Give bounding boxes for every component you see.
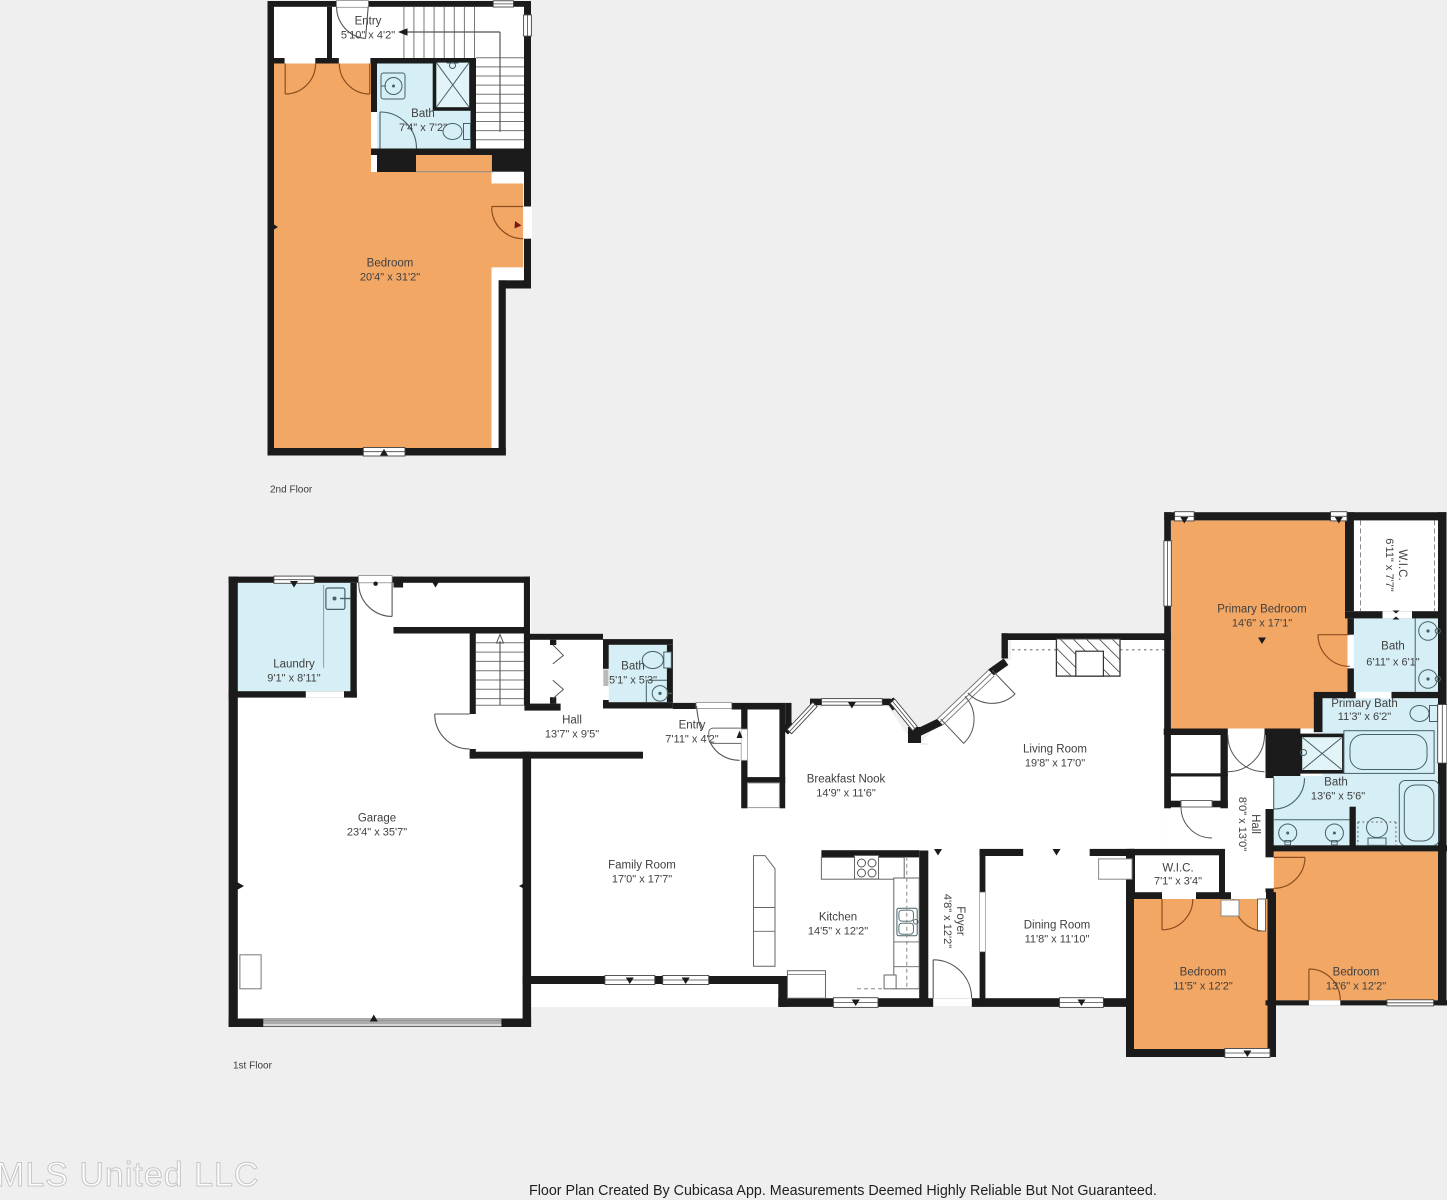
svg-text:14'6" x 17'1": 14'6" x 17'1" <box>1232 618 1292 630</box>
svg-text:17'0" x 17'7": 17'0" x 17'7" <box>612 874 672 886</box>
svg-text:Bath: Bath <box>1324 777 1348 789</box>
svg-text:9'1" x 8'11": 9'1" x 8'11" <box>267 673 320 685</box>
svg-text:8'0" x 13'0": 8'0" x 13'0" <box>1236 797 1248 851</box>
svg-text:11'3" x 6'2": 11'3" x 6'2" <box>1338 711 1391 723</box>
svg-text:19'8" x 17'0": 19'8" x 17'0" <box>1025 758 1085 770</box>
svg-text:13'6" x 12'2": 13'6" x 12'2" <box>1326 981 1386 993</box>
svg-text:Bath: Bath <box>1381 641 1405 653</box>
svg-text:Entry: Entry <box>679 720 706 732</box>
svg-text:11'5" x 12'2": 11'5" x 12'2" <box>1173 981 1233 993</box>
svg-text:6'11" x 6'1": 6'11" x 6'1" <box>1366 657 1419 669</box>
svg-text:7'1" x 3'4": 7'1" x 3'4" <box>1154 876 1202 888</box>
svg-text:1st Floor: 1st Floor <box>233 1061 273 1072</box>
svg-text:Bath: Bath <box>621 661 645 673</box>
svg-text:7'11" x 4'2": 7'11" x 4'2" <box>665 734 718 746</box>
svg-text:Bedroom: Bedroom <box>367 258 414 270</box>
svg-text:14'9" x 11'6": 14'9" x 11'6" <box>816 788 876 800</box>
svg-text:7'4" x 7'2": 7'4" x 7'2" <box>399 122 447 134</box>
svg-text:20'4" x 31'2": 20'4" x 31'2" <box>360 272 420 284</box>
svg-text:Family Room: Family Room <box>608 860 676 872</box>
svg-text:Kitchen: Kitchen <box>819 912 857 924</box>
svg-text:W.I.C.: W.I.C. <box>1162 863 1193 875</box>
svg-text:5'10" x 4'2": 5'10" x 4'2" <box>341 30 395 42</box>
svg-text:4'8" x 12'2": 4'8" x 12'2" <box>941 894 953 948</box>
svg-text:13'6" x 5'6": 13'6" x 5'6" <box>1311 791 1365 803</box>
svg-text:Floor Plan Created By Cubicasa: Floor Plan Created By Cubicasa App. Meas… <box>529 1183 1157 1199</box>
svg-text:2nd Floor: 2nd Floor <box>270 485 313 496</box>
svg-text:14'5" x 12'2": 14'5" x 12'2" <box>808 926 868 938</box>
svg-text:5'1" x 5'3": 5'1" x 5'3" <box>609 675 657 687</box>
svg-text:Bedroom: Bedroom <box>1180 967 1227 979</box>
svg-text:Laundry: Laundry <box>273 659 315 671</box>
svg-text:Bedroom: Bedroom <box>1333 967 1380 979</box>
svg-text:Primary Bedroom: Primary Bedroom <box>1217 604 1306 616</box>
svg-text:11'8" x 11'10": 11'8" x 11'10" <box>1025 934 1090 946</box>
svg-text:Living Room: Living Room <box>1023 744 1087 756</box>
svg-text:Hall: Hall <box>562 715 582 727</box>
svg-text:Entry: Entry <box>355 16 382 28</box>
svg-text:Bath: Bath <box>411 108 435 120</box>
svg-text:Breakfast Nook: Breakfast Nook <box>807 774 886 786</box>
svg-text:W.I.C.: W.I.C. <box>1396 549 1408 580</box>
svg-text:Foyer: Foyer <box>954 906 966 936</box>
svg-text:23'4" x 35'7": 23'4" x 35'7" <box>347 827 407 839</box>
svg-text:Garage: Garage <box>358 813 396 825</box>
svg-text:Hall: Hall <box>1249 814 1261 834</box>
svg-text:Dining Room: Dining Room <box>1024 920 1090 932</box>
svg-text:MLS United LLC: MLS United LLC <box>0 1156 259 1194</box>
svg-text:6'11" x 7'7": 6'11" x 7'7" <box>1383 538 1395 591</box>
svg-text:Primary Bath: Primary Bath <box>1331 698 1397 710</box>
svg-text:13'7" x 9'5": 13'7" x 9'5" <box>545 729 599 741</box>
